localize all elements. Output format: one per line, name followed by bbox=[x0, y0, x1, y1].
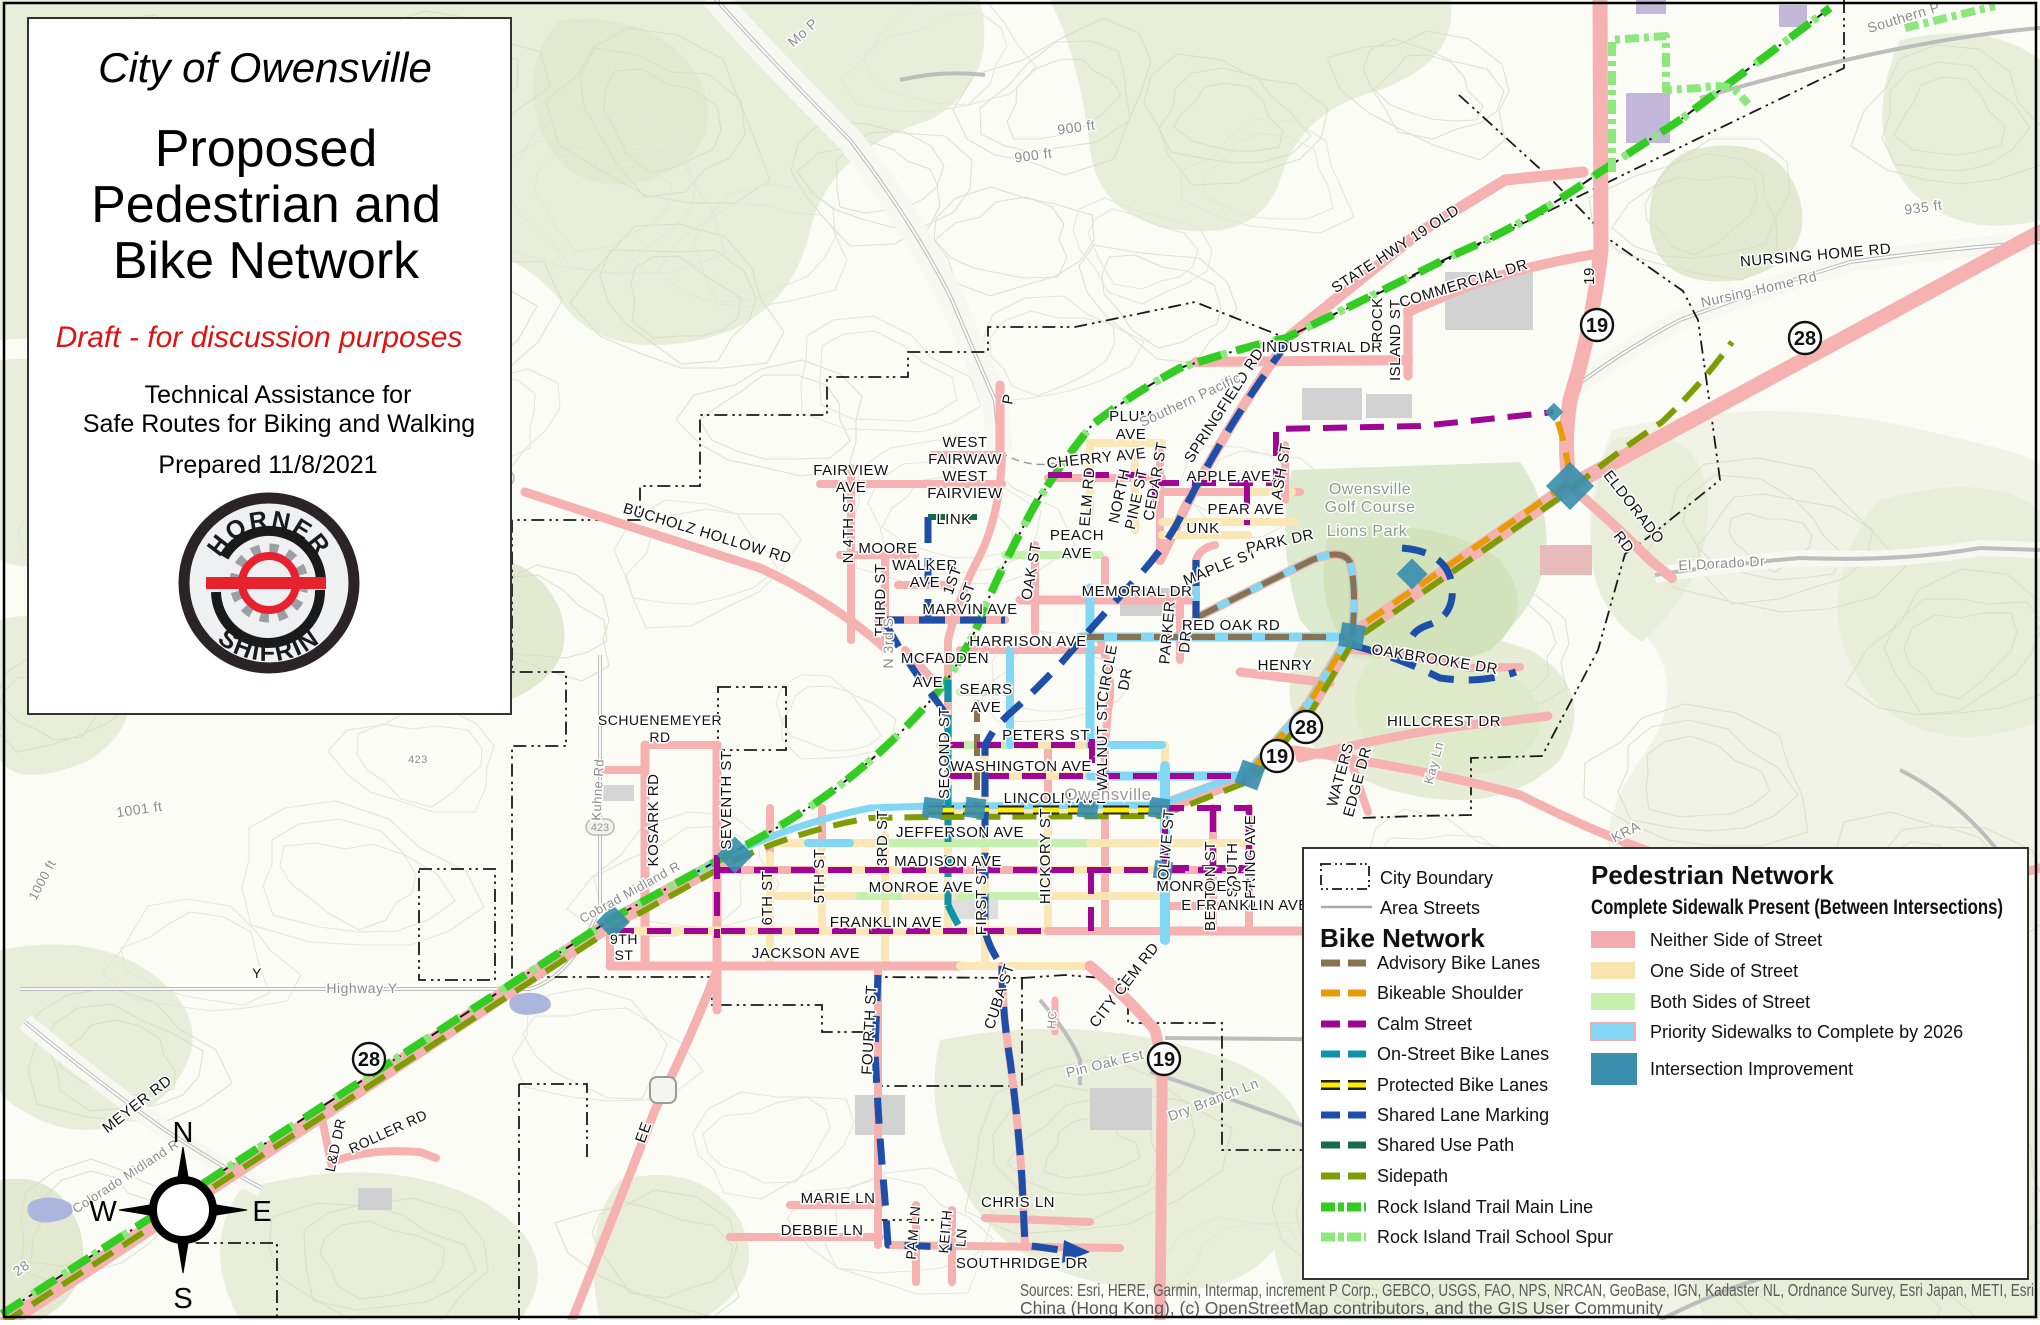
svg-text:9TH: 9TH bbox=[610, 931, 638, 947]
svg-text:Owensville: Owensville bbox=[1329, 481, 1411, 498]
svg-text:JACKSON AVE: JACKSON AVE bbox=[752, 945, 861, 962]
svg-text:KOSARK RD: KOSARK RD bbox=[645, 774, 662, 867]
svg-text:E: E bbox=[252, 1196, 271, 1228]
svg-text:ROCK: ROCK bbox=[1369, 297, 1386, 342]
svg-text:3RD ST: 3RD ST bbox=[874, 810, 891, 866]
svg-text:HENRY: HENRY bbox=[1258, 657, 1313, 674]
svg-text:Proposed: Proposed bbox=[155, 120, 378, 178]
svg-text:PETERS ST: PETERS ST bbox=[1002, 727, 1090, 744]
svg-text:28: 28 bbox=[358, 1049, 380, 1071]
svg-text:S: S bbox=[173, 1283, 192, 1315]
svg-text:City of Owensville: City of Owensville bbox=[98, 44, 432, 91]
svg-text:DEBBIE LN: DEBBIE LN bbox=[781, 1222, 864, 1239]
svg-text:AVE: AVE bbox=[910, 574, 940, 591]
svg-text:WEST: WEST bbox=[942, 468, 987, 485]
svg-text:Protected Bike Lanes: Protected Bike Lanes bbox=[1377, 1075, 1548, 1095]
svg-text:SPRING AVE: SPRING AVE bbox=[1242, 815, 1259, 910]
svg-text:JEFFERSON AVE: JEFFERSON AVE bbox=[896, 824, 1024, 841]
svg-text:MOORE: MOORE bbox=[858, 540, 917, 557]
svg-text:Prepared 11/8/2021: Prepared 11/8/2021 bbox=[158, 451, 377, 479]
svg-text:LN: LN bbox=[952, 1227, 970, 1247]
svg-text:Advisory Bike Lanes: Advisory Bike Lanes bbox=[1377, 953, 1540, 973]
svg-text:INDUSTRIAL DR: INDUSTRIAL DR bbox=[1262, 339, 1383, 356]
svg-text:SEVENTH ST: SEVENTH ST bbox=[718, 750, 735, 849]
svg-text:AVE: AVE bbox=[971, 699, 1001, 716]
svg-text:AVE: AVE bbox=[1062, 545, 1092, 562]
svg-text:WALNUT ST: WALNUT ST bbox=[1094, 701, 1111, 791]
svg-text:6TH ST: 6TH ST bbox=[759, 871, 776, 926]
svg-text:Rock Island Trail Main Line: Rock Island Trail Main Line bbox=[1377, 1197, 1593, 1217]
svg-text:PEACH: PEACH bbox=[1050, 527, 1104, 544]
svg-text:SCHUENEMEYER: SCHUENEMEYER bbox=[598, 712, 722, 728]
svg-text:One Side of Street: One Side of Street bbox=[1650, 961, 1798, 981]
svg-text:Golf Course: Golf Course bbox=[1325, 499, 1416, 516]
svg-text:Sources: Esri, HERE, Garmin, I: Sources: Esri, HERE, Garmin, Intermap, i… bbox=[1020, 1280, 2034, 1300]
svg-text:City Boundary: City Boundary bbox=[1380, 868, 1493, 888]
svg-text:MARVIN AVE: MARVIN AVE bbox=[922, 601, 1017, 618]
svg-text:Rock Island Trail School Spur: Rock Island Trail School Spur bbox=[1377, 1227, 1613, 1247]
svg-text:HICKORY ST: HICKORY ST bbox=[1037, 808, 1054, 904]
svg-text:Y: Y bbox=[252, 965, 262, 981]
svg-text:5TH ST: 5TH ST bbox=[811, 849, 828, 904]
svg-text:MCFADDEN: MCFADDEN bbox=[901, 650, 989, 667]
svg-text:N 4TH ST: N 4TH ST bbox=[840, 493, 857, 564]
svg-text:Neither Side of Street: Neither Side of Street bbox=[1650, 930, 1822, 950]
svg-text:Complete Sidewalk Present (Bet: Complete Sidewalk Present (Between Inter… bbox=[1591, 896, 2003, 919]
svg-text:Calm Street: Calm Street bbox=[1377, 1014, 1472, 1034]
svg-text:Lions Park: Lions Park bbox=[1327, 523, 1408, 540]
svg-text:China (Hong Kong), (c) OpenStr: China (Hong Kong), (c) OpenStreetMap con… bbox=[1020, 1298, 1663, 1318]
svg-text:Bikeable Shoulder: Bikeable Shoulder bbox=[1377, 983, 1523, 1003]
svg-text:Pedestrian and: Pedestrian and bbox=[91, 176, 441, 234]
svg-text:DR: DR bbox=[1176, 630, 1195, 654]
svg-text:WEST: WEST bbox=[942, 434, 987, 451]
svg-text:Both Sides of Street: Both Sides of Street bbox=[1650, 992, 1810, 1012]
svg-text:Safe Routes for Biking and Wal: Safe Routes for Biking and Walking bbox=[83, 410, 475, 438]
svg-text:Shared Lane Marking: Shared Lane Marking bbox=[1377, 1105, 1549, 1125]
svg-text:CHRIS LN: CHRIS LN bbox=[981, 1194, 1055, 1211]
svg-text:MONROE AVE: MONROE AVE bbox=[869, 879, 974, 896]
svg-text:FAIRVIEW: FAIRVIEW bbox=[927, 485, 1003, 502]
svg-text:19: 19 bbox=[1581, 267, 1598, 285]
svg-text:HILLCREST DR: HILLCREST DR bbox=[1387, 713, 1501, 730]
svg-text:WASHINGTON AVE: WASHINGTON AVE bbox=[950, 758, 1092, 775]
svg-text:RD: RD bbox=[649, 729, 670, 745]
svg-text:28: 28 bbox=[1794, 328, 1816, 350]
svg-text:19: 19 bbox=[1153, 1049, 1175, 1071]
svg-text:Shared Use Path: Shared Use Path bbox=[1377, 1135, 1514, 1155]
svg-text:423: 423 bbox=[591, 822, 609, 834]
svg-text:LINK: LINK bbox=[936, 511, 971, 528]
svg-text:APPLE AVE: APPLE AVE bbox=[1186, 468, 1271, 485]
svg-text:423: 423 bbox=[408, 754, 428, 766]
svg-text:UNK: UNK bbox=[1186, 520, 1219, 537]
svg-text:RED OAK RD: RED OAK RD bbox=[1182, 617, 1280, 634]
svg-text:Bike Network: Bike Network bbox=[113, 232, 420, 290]
svg-text:On-Street Bike Lanes: On-Street Bike Lanes bbox=[1377, 1044, 1549, 1064]
svg-text:MEMORIAL DR: MEMORIAL DR bbox=[1082, 583, 1193, 600]
svg-text:AVE: AVE bbox=[913, 674, 943, 691]
svg-text:Sidepath: Sidepath bbox=[1377, 1166, 1448, 1186]
svg-text:HC: HC bbox=[1044, 1010, 1060, 1029]
svg-text:FAIRWAW: FAIRWAW bbox=[928, 451, 1002, 468]
svg-text:SECOND ST: SECOND ST bbox=[936, 707, 953, 799]
svg-text:PEAR AVE: PEAR AVE bbox=[1207, 501, 1284, 518]
svg-text:SEARS: SEARS bbox=[959, 681, 1012, 698]
svg-text:FIRST ST: FIRST ST bbox=[973, 865, 990, 935]
svg-text:N: N bbox=[173, 1117, 194, 1149]
svg-text:Draft - for discussion purpose: Draft - for discussion purposes bbox=[56, 321, 463, 354]
svg-text:Priority Sidewalks to Complete: Priority Sidewalks to Complete by 2026 bbox=[1650, 1022, 1963, 1042]
svg-text:Technical Assistance for: Technical Assistance for bbox=[145, 381, 412, 409]
svg-text:W: W bbox=[89, 1196, 117, 1228]
svg-text:FRANKLIN AVE: FRANKLIN AVE bbox=[830, 914, 942, 931]
svg-text:19: 19 bbox=[1586, 315, 1608, 337]
svg-text:Intersection Improvement: Intersection Improvement bbox=[1650, 1059, 1853, 1079]
svg-text:ST: ST bbox=[615, 947, 634, 963]
svg-text:N 3rd S: N 3rd S bbox=[880, 618, 896, 669]
svg-text:Highway Y: Highway Y bbox=[326, 980, 397, 996]
svg-text:Owensville: Owensville bbox=[1064, 785, 1151, 804]
svg-text:AVE: AVE bbox=[1116, 426, 1146, 443]
svg-text:E FRANKLIN AVE: E FRANKLIN AVE bbox=[1181, 897, 1309, 914]
svg-text:MONROE ST: MONROE ST bbox=[1156, 878, 1251, 895]
svg-text:Pedestrian Network: Pedestrian Network bbox=[1591, 860, 1834, 890]
svg-text:MARIE LN: MARIE LN bbox=[801, 1190, 876, 1207]
svg-text:SOUTHRIDGE DR: SOUTHRIDGE DR bbox=[956, 1255, 1088, 1272]
svg-text:19: 19 bbox=[1266, 746, 1288, 768]
svg-text:HARRISON AVE: HARRISON AVE bbox=[969, 633, 1086, 650]
svg-text:28: 28 bbox=[1295, 717, 1317, 739]
svg-text:FAIRVIEW: FAIRVIEW bbox=[813, 462, 889, 479]
svg-text:Area Streets: Area Streets bbox=[1380, 898, 1480, 918]
svg-text:Bike Network: Bike Network bbox=[1320, 923, 1485, 953]
